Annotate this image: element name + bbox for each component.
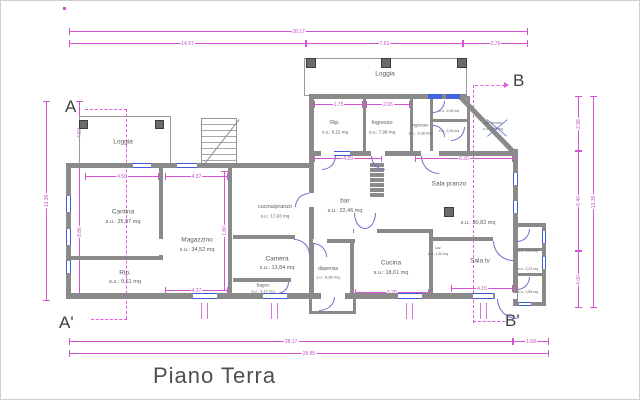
room-area-bagno: s.u.: 3,17 mq [251, 289, 274, 294]
door-gap [309, 193, 314, 207]
dimension-label: 28.17 [284, 339, 299, 345]
room-area-sala-pranzo: s.u.: 30,82 mq [461, 220, 496, 226]
column [457, 58, 467, 68]
dimension-label: 2.76 [490, 41, 502, 47]
dimension-label: 6.30 [458, 156, 470, 162]
column [79, 120, 88, 129]
room-area-wc-right-1: s.u.: 2,22 mq [518, 249, 538, 253]
wall [515, 273, 543, 276]
room-label-rip-left: Rip. [119, 270, 131, 277]
column [306, 58, 316, 68]
dimension-label: 13.36 [591, 195, 597, 210]
room-label-sala-pranzo: Sala pranzo [432, 181, 467, 188]
wall [309, 311, 356, 314]
wall [363, 99, 366, 151]
room-label-loggia-top: Loggia [375, 71, 395, 78]
dimension-label: 8.86 [77, 226, 83, 238]
room-label-bagno: Bagno [256, 283, 269, 288]
room-area-loc-tecnico: s.u.: 3,05 mq [483, 127, 503, 131]
window-tag [201, 303, 208, 319]
room-label-lav: Lav. [435, 246, 441, 250]
room-label-ingresso: Ingresso [371, 120, 392, 126]
section-line-b [475, 85, 505, 86]
room-label-camera: Camera [265, 256, 288, 263]
wall [309, 94, 467, 99]
window [177, 163, 197, 168]
room-label-loggia-left: Loggia [113, 139, 133, 146]
dimension-right-top: 2.96 [578, 96, 579, 151]
window [263, 293, 287, 299]
dimension-label: 4.37 [191, 174, 203, 180]
wall [430, 119, 470, 122]
plot-mark [63, 7, 66, 10]
window [513, 201, 518, 213]
door-arc [322, 156, 336, 170]
window [66, 229, 71, 245]
window-tag [406, 303, 413, 319]
door-arc [365, 213, 376, 229]
room-area-rip-top: s.u.: 8,22 mq [322, 130, 348, 135]
wall [309, 94, 314, 168]
room-area-magazzino: s.u.: 34,52 mq [180, 247, 215, 253]
room-label-cantina: Cantina [112, 209, 134, 216]
column [381, 58, 391, 68]
dimension-label: 2.65 [382, 102, 394, 108]
door-gap [159, 239, 163, 255]
wall [66, 293, 518, 299]
section-marker-a-prime: A' [59, 313, 74, 333]
window [193, 293, 217, 299]
dimension-right-total: 13.36 [593, 96, 594, 308]
room-area-cantina: s.u.: 25,97 mq [106, 219, 141, 225]
door-arc [354, 213, 365, 229]
window [398, 293, 422, 299]
wall [309, 163, 314, 299]
column [444, 207, 454, 217]
room-area-wc-right-2: s.u.: 2,22 mq [518, 267, 538, 271]
dimension-magazzino-width: 4.37 [165, 176, 228, 177]
room-label-cucina-pranzo: cucina/pranzo [258, 204, 292, 210]
wall [233, 235, 295, 239]
room-area-camera: s.u.: 13,84 mq [260, 265, 295, 271]
dimension-label: 4.00 [576, 274, 582, 286]
column [155, 120, 164, 129]
room-label-bar: bar [340, 198, 349, 205]
dimension-left-total: 13.36 [46, 101, 47, 301]
room-label-rip-top: Rip. [330, 120, 340, 126]
dimension-label: 13.36 [44, 194, 50, 209]
door-arc [517, 277, 530, 290]
room-area-cucina: s.u.: 18,61 mq [374, 270, 409, 276]
dimension-ingresso-width: 2.65 [366, 104, 410, 105]
door-arc [517, 229, 530, 242]
room-label-cucina: Cucina [381, 260, 401, 267]
dimension-label: 1.68 [525, 339, 537, 345]
wall [228, 168, 232, 296]
wall [467, 96, 470, 151]
dimension-label: 29.85 [302, 351, 317, 357]
window [133, 163, 151, 168]
section-marker-b: B [513, 71, 524, 91]
room-area-wc-right-3: s.u.: 1,89 mq [518, 290, 538, 294]
room-label-sala-tv: Sala tv [470, 258, 490, 265]
door-arc [421, 156, 439, 174]
window [428, 94, 442, 99]
room-area-cucina-pranzo: s.u.: 17,03 mq [261, 214, 290, 219]
window [542, 257, 546, 269]
section-line-a [85, 109, 127, 110]
dimension-bottom-right: 1.68 [513, 341, 549, 342]
door-arc [313, 243, 327, 257]
door-arc [294, 239, 310, 255]
dimension-label: 14.57 [180, 41, 195, 47]
dimension-top-total: 28.17 [69, 31, 528, 32]
window [519, 302, 531, 306]
section-line-b [473, 85, 474, 323]
window [473, 293, 493, 299]
room-label-loc-tecnico: Loc. tecnico [484, 121, 503, 125]
room-label-dispensa: dispensa [318, 266, 338, 272]
window [66, 196, 71, 212]
room-area-ingresso: s.u.: 7,98 mq [369, 130, 395, 135]
door-arc [295, 193, 309, 207]
section-marker-a: A [65, 97, 76, 117]
dimension-top-mid: 7.61 [306, 43, 463, 44]
window [446, 94, 460, 99]
room-area-bar: s.u.: 22,46 mq [328, 208, 363, 214]
dimension-label: 4.20 [342, 156, 354, 162]
room-label-magazzino: Magazzino [181, 237, 212, 244]
dimension-label: 7.61 [379, 41, 391, 47]
wall [71, 256, 161, 260]
room-area-wc-top-2: s.u.: 2,26 mq [439, 129, 459, 133]
room-area-ingresso-small: s.u.: 3,08 mq [408, 131, 431, 136]
window [542, 231, 546, 243]
door-gap [354, 229, 377, 233]
door-arc [497, 299, 517, 319]
window [66, 261, 71, 273]
door-arc [319, 297, 335, 311]
dimension-right-mid: 6.40 [578, 151, 579, 251]
room-label-ingresso-small: ingresso [411, 123, 428, 128]
dimension-bottom-total: 29.85 [69, 353, 549, 354]
room-area-wc-top-1: s.u.: 2,06 mq [439, 109, 459, 113]
room-area-lav: s.u.: 1,50 mq [428, 252, 448, 256]
room-area-dispensa: s.u.: 6,60 mq [316, 275, 339, 280]
door-arc [493, 241, 513, 261]
section-line-b-prime [473, 321, 505, 322]
dimension-bottom-main: 28.17 [69, 341, 513, 342]
floor-plan-canvas: 28.17 14.57 7.61 2.76 28.17 1.68 29.85 1… [0, 0, 640, 400]
window [334, 151, 350, 156]
page-title: Piano Terra [153, 363, 276, 389]
window-tag [271, 303, 278, 319]
dimension-label: 28.17 [291, 29, 306, 35]
window-tag [480, 303, 487, 319]
dimension-sala-tv-width: 4.15 [451, 288, 513, 289]
dimension-label: 4.15 [476, 286, 488, 292]
dimension-top-left: 14.57 [69, 43, 306, 44]
dimension-label: 6.40 [576, 195, 582, 207]
dimension-label: 7.80 [222, 225, 228, 237]
window [513, 173, 518, 185]
dimension-label: 2.96 [576, 118, 582, 130]
section-line-a-prime [91, 319, 127, 320]
dimension-rip-width: 1.75 [314, 104, 363, 105]
dimension-left-bottom: 8.86 [79, 164, 80, 299]
dimension-top-right: 2.76 [463, 43, 528, 44]
dimension-label: 1.75 [333, 102, 345, 108]
section-arrow-b [504, 82, 509, 88]
room-area-rip-left: s.u.: 9,61 mq [109, 279, 141, 285]
dimension-magazzino-height: 7.80 [224, 171, 225, 291]
dimension-right-bottom: 4.00 [578, 251, 579, 308]
dimension-cantina-width: 4.50 [85, 176, 159, 177]
wall [350, 239, 354, 297]
dimension-magazzino-width2: 4.37 [165, 290, 228, 291]
